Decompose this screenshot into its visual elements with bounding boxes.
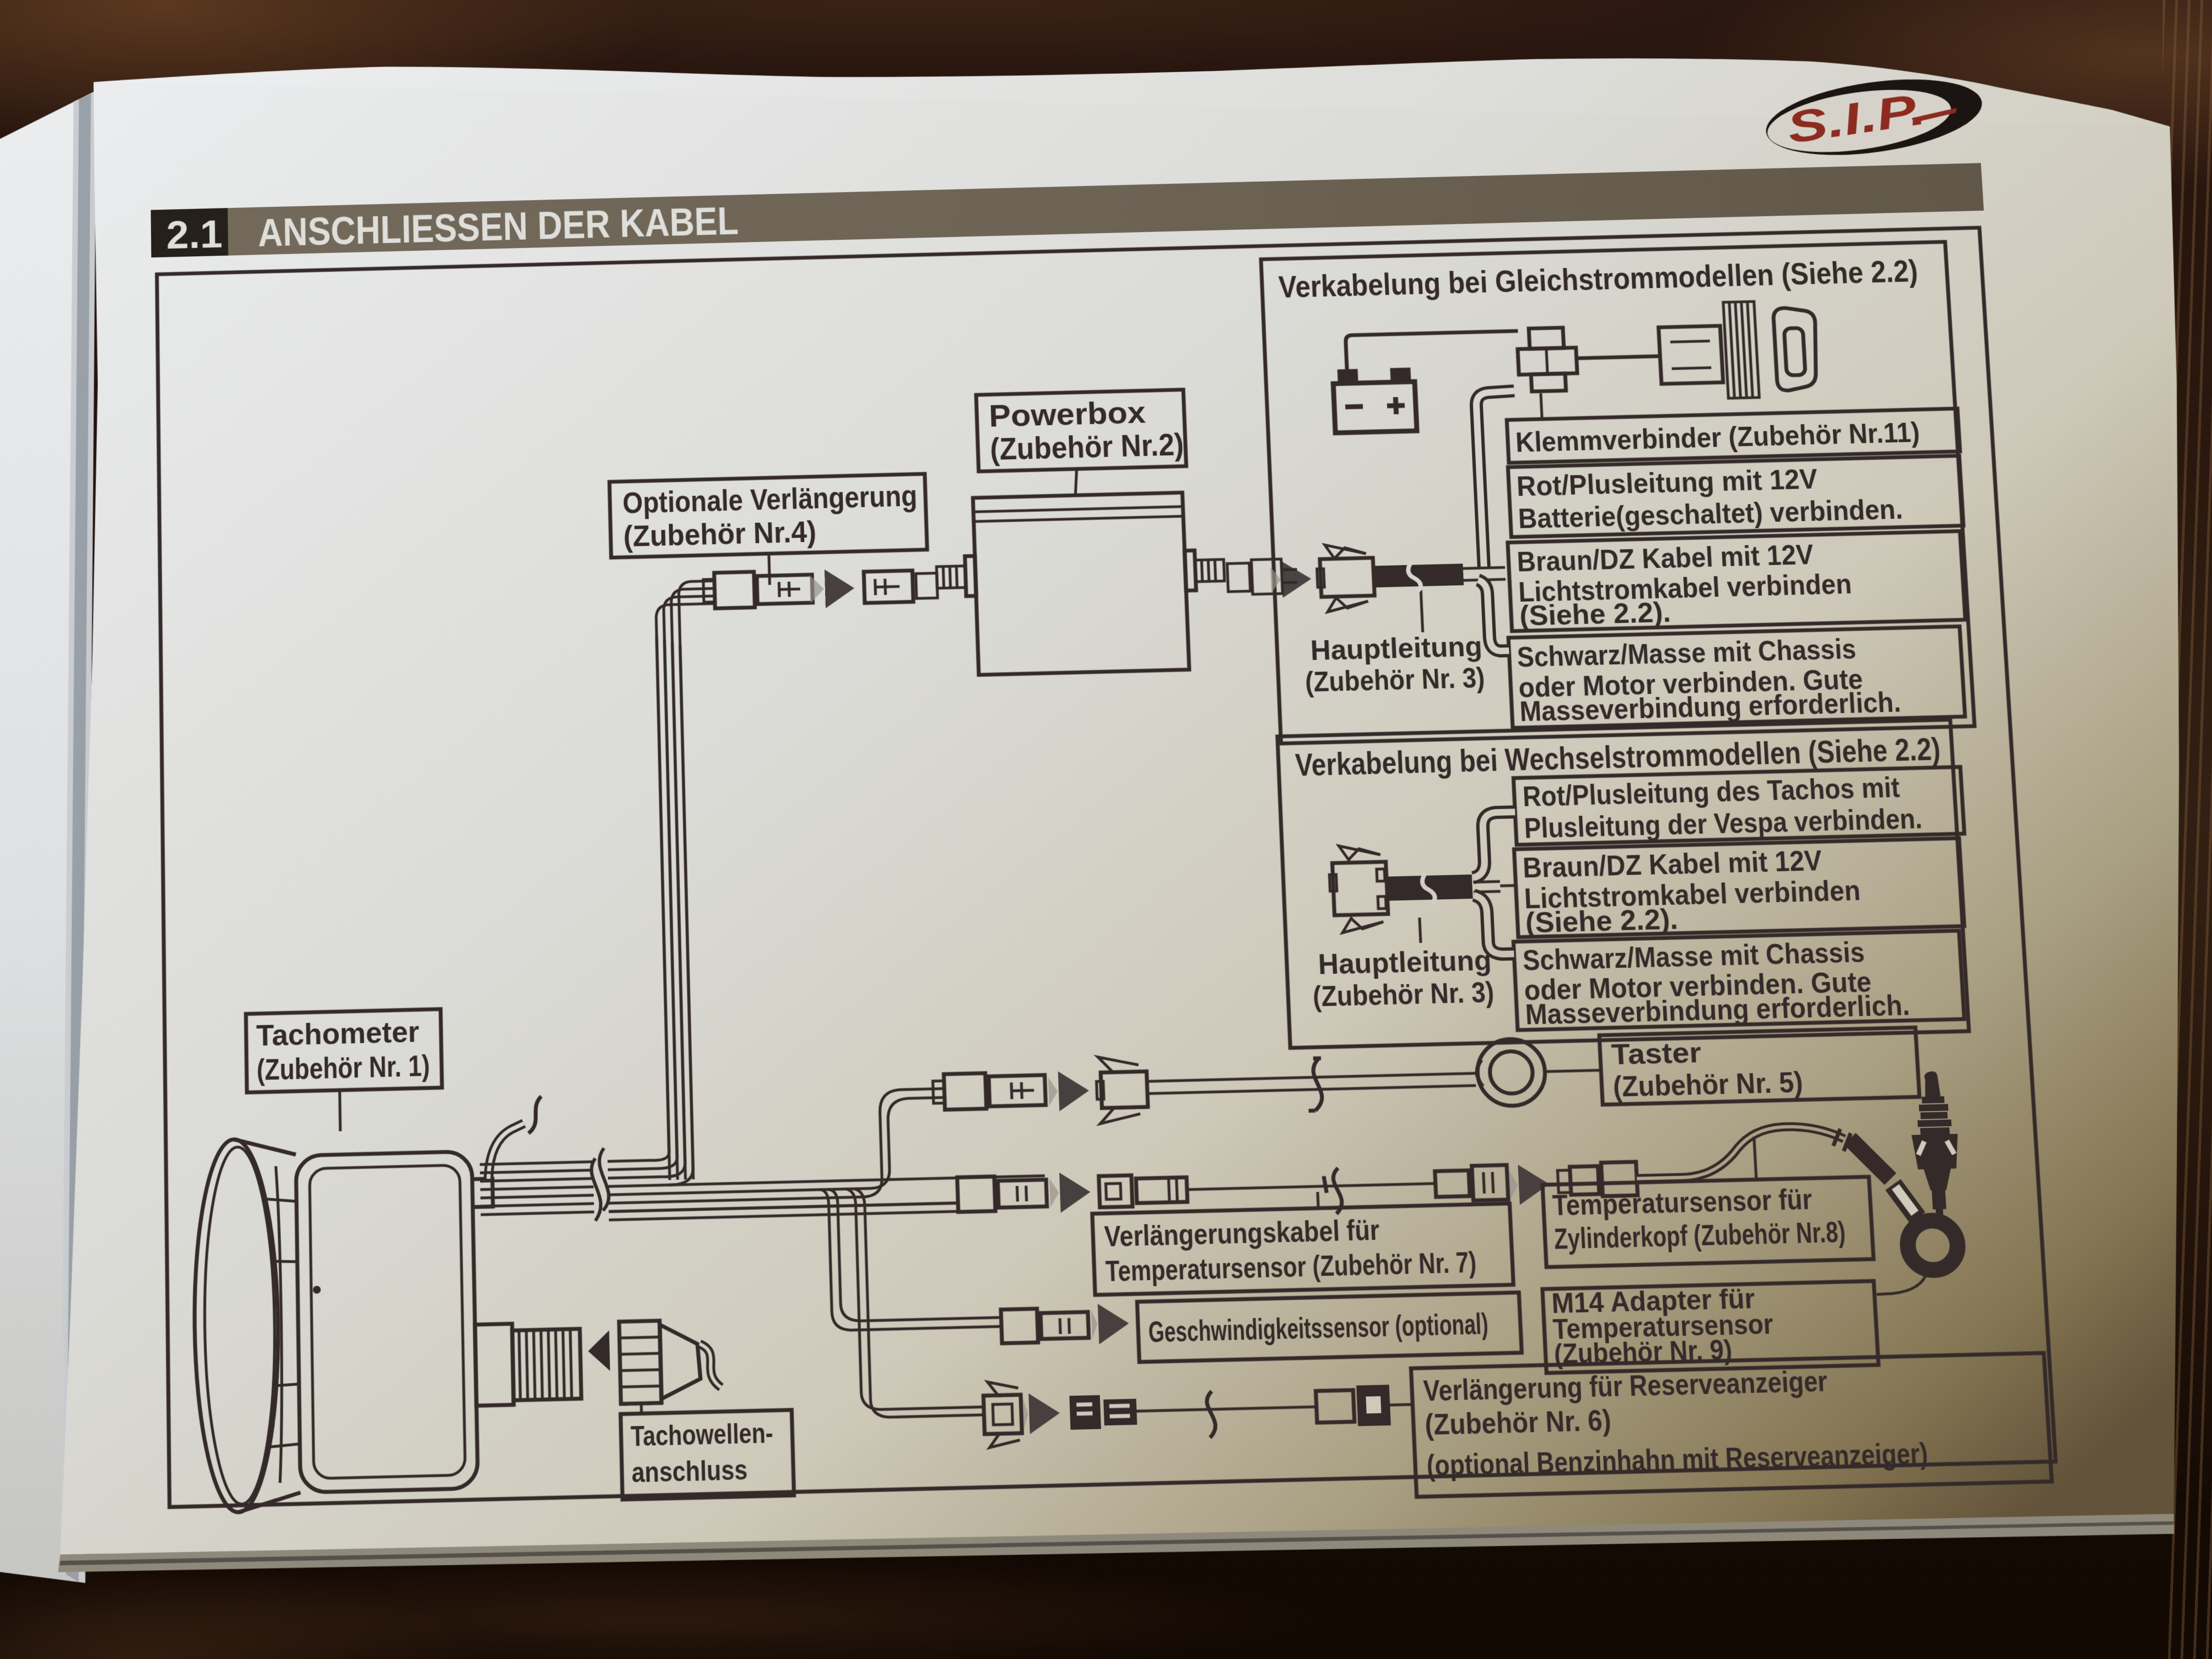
svg-text:Verlängerungskabel für: Verlängerungskabel für	[1104, 1214, 1380, 1253]
svg-text:(Siehe 2.2).: (Siehe 2.2).	[1525, 903, 1679, 939]
svg-text:(Zubehör Nr.2): (Zubehör Nr.2)	[990, 427, 1184, 467]
svg-text:Tachometer: Tachometer	[256, 1015, 420, 1052]
svg-text:Taster: Taster	[1611, 1036, 1702, 1071]
svg-text:(Siehe 2.2).: (Siehe 2.2).	[1519, 596, 1671, 631]
svg-text:(Zubehör Nr. 3): (Zubehör Nr. 3)	[1312, 976, 1495, 1013]
svg-text:(Zubehör Nr. 6): (Zubehör Nr. 6)	[1424, 1403, 1612, 1441]
svg-text:Powerbox: Powerbox	[989, 396, 1147, 434]
svg-text:(Zubehör Nr. 3): (Zubehör Nr. 3)	[1305, 662, 1486, 698]
svg-text:(Zubehör Nr. 1): (Zubehör Nr. 1)	[256, 1049, 430, 1087]
svg-text:Hauptleitung: Hauptleitung	[1317, 944, 1492, 980]
svg-text:anschluss: anschluss	[631, 1454, 748, 1488]
svg-text:Tachowellen-: Tachowellen-	[630, 1418, 774, 1452]
svg-text:(Zubehör Nr. 5): (Zubehör Nr. 5)	[1612, 1066, 1804, 1103]
svg-text:Hauptleitung: Hauptleitung	[1310, 630, 1483, 667]
svg-text:2.1: 2.1	[166, 213, 223, 257]
svg-text:(Zubehör Nr.4): (Zubehör Nr.4)	[623, 514, 817, 553]
svg-text:Temperatursensor für: Temperatursensor für	[1551, 1183, 1813, 1222]
